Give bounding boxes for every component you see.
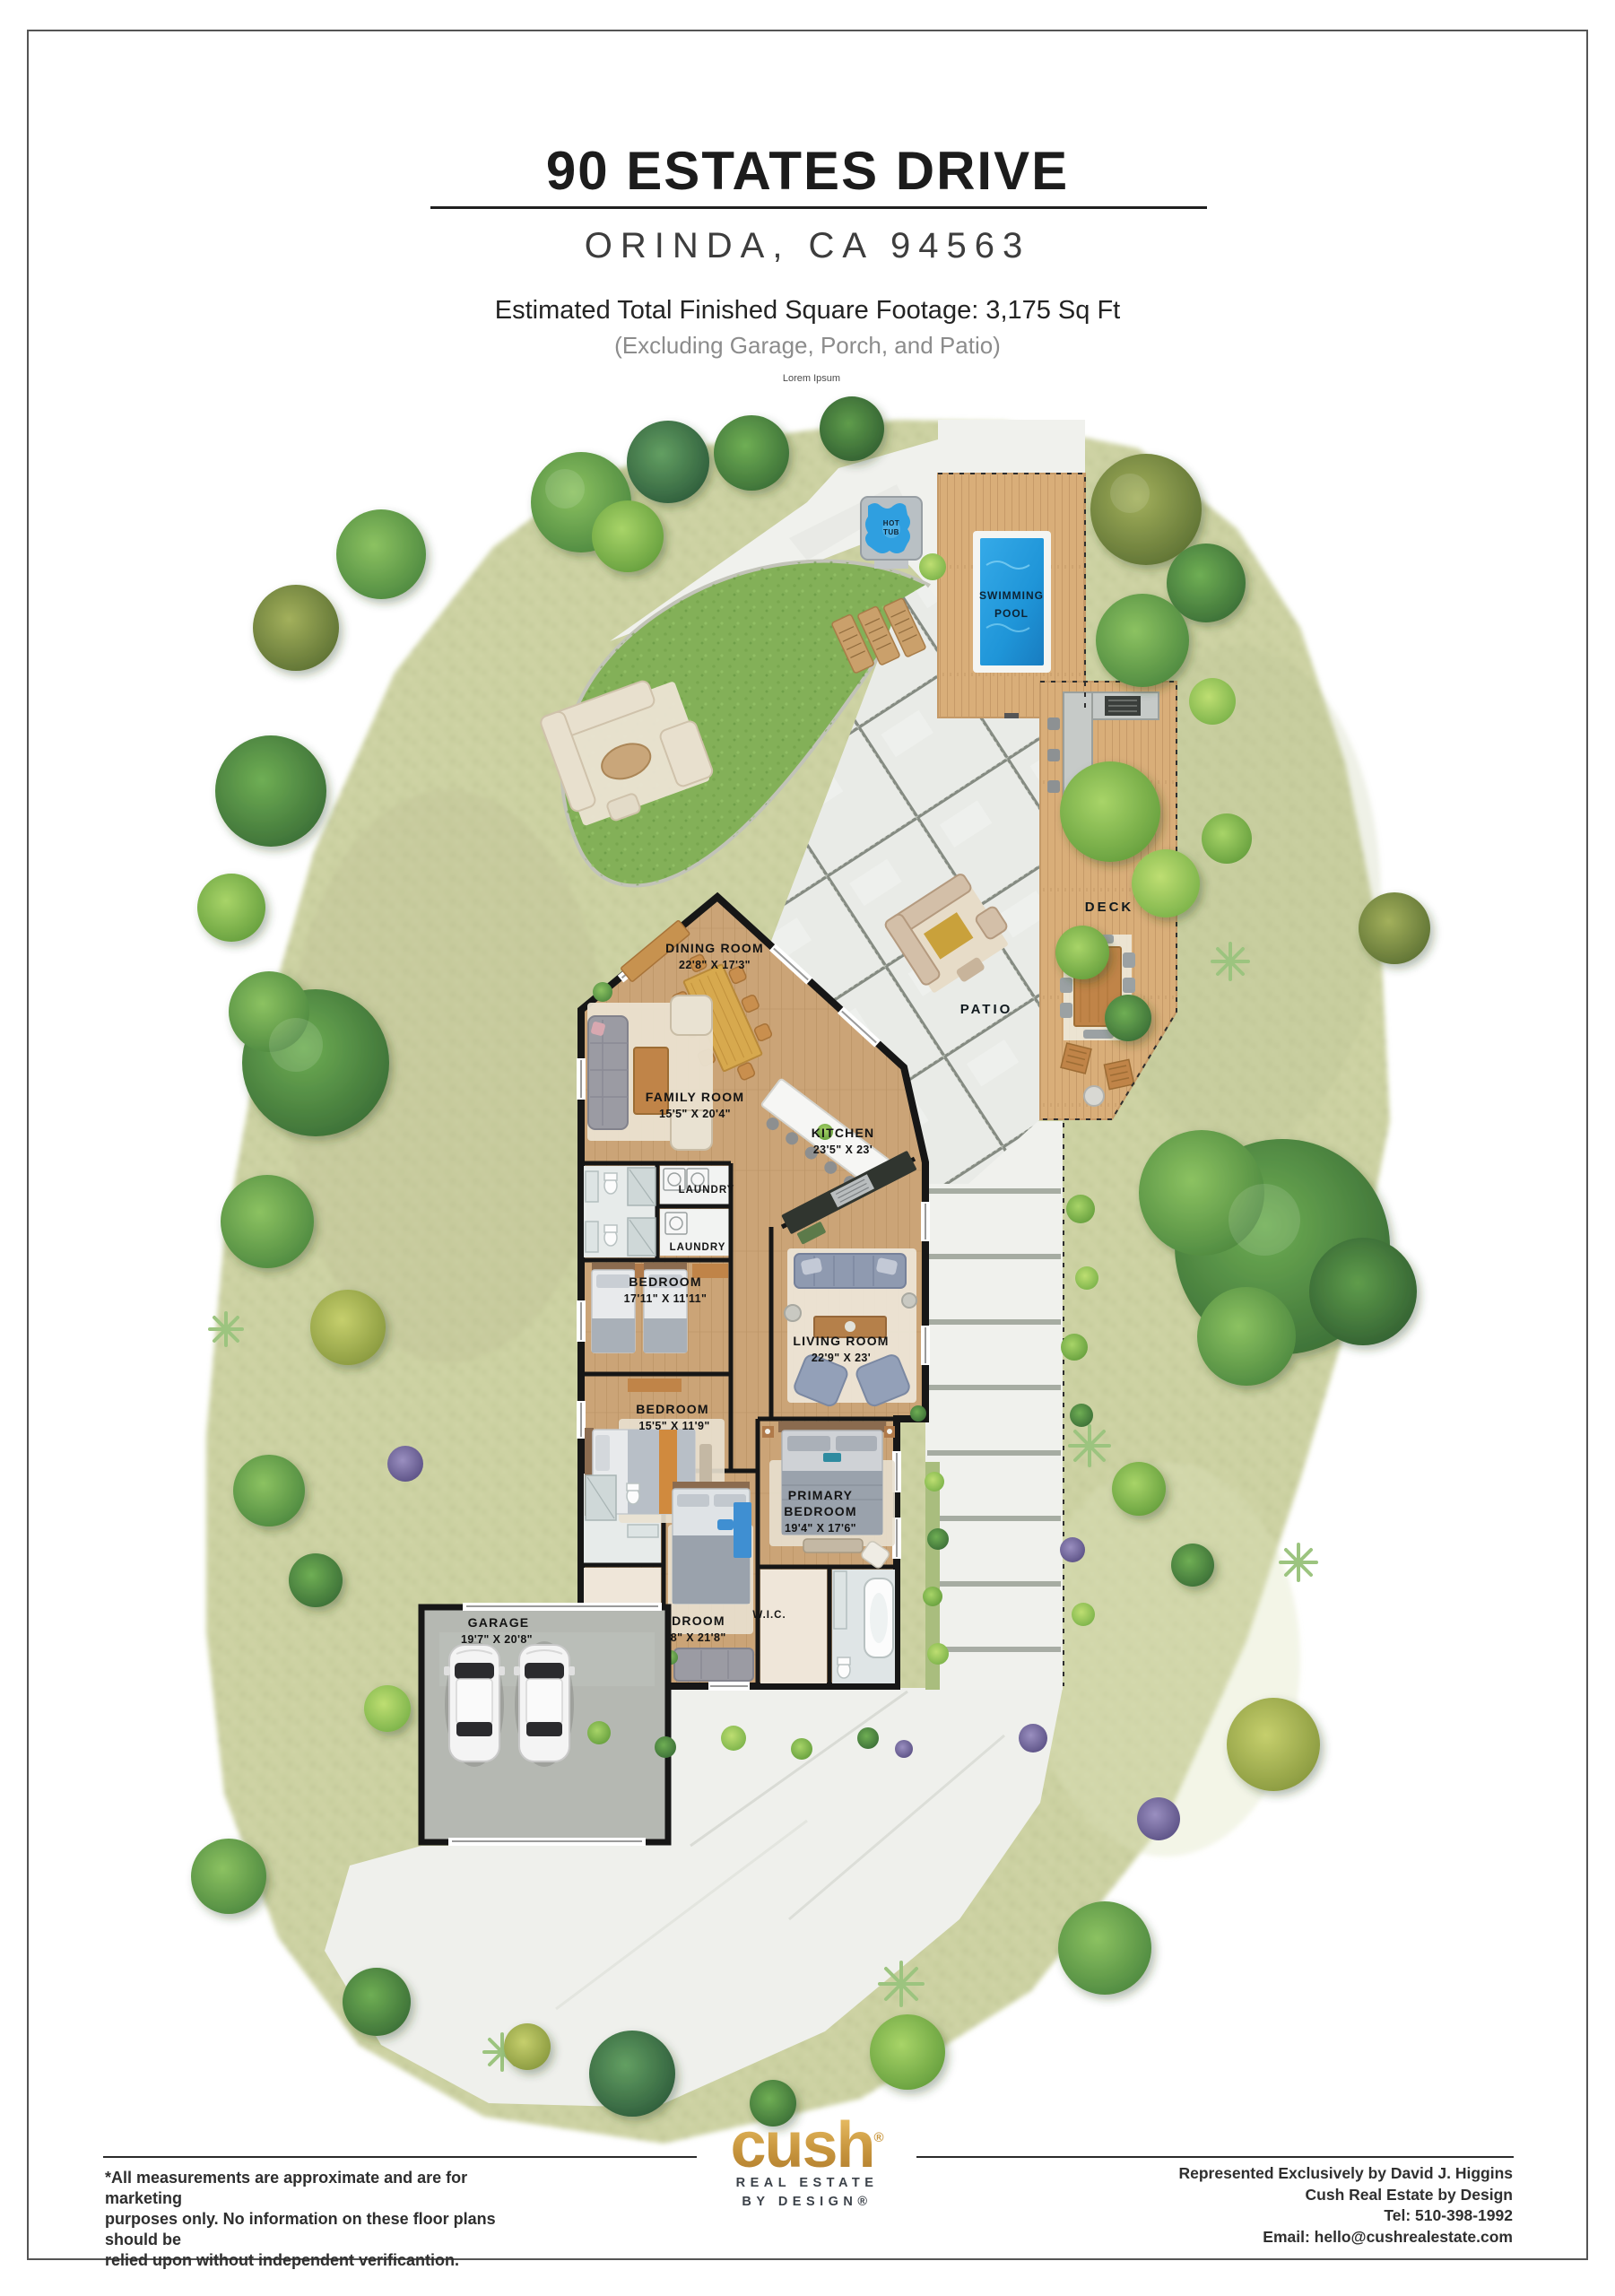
label-dining-room: DINING ROOM — [665, 941, 764, 955]
hall-runner — [734, 1502, 751, 1558]
label-bedroom-1: BEDROOM — [629, 1274, 702, 1289]
label-primary-bedroom-dims: 19'4" X 17'6" — [785, 1522, 856, 1535]
real-estate-flyer: { "colors": { "gold": "#c9973f", "gold_l… — [0, 0, 1615, 2296]
label-kitchen-dims: 23'5" X 23' — [813, 1144, 873, 1156]
label-family-room-dims: 15'5" X 20'4" — [659, 1108, 731, 1120]
footer-rule-right — [916, 2156, 1514, 2158]
footer-rule-left — [103, 2156, 697, 2158]
brand-logo: cush® REAL ESTATE BY DESIGN® — [664, 2117, 951, 2212]
hot-tub-label-line1: HOT — [883, 519, 899, 527]
site-plan: SWIMMING POOL HOT TUB DECK — [0, 0, 1615, 2296]
swimming-pool: SWIMMING POOL — [973, 531, 1051, 673]
contact-line: Email: hello@cushrealestate.com — [975, 2227, 1513, 2248]
car-right — [514, 1641, 575, 1767]
brand-tagline-line2: BY DESIGN® — [664, 2193, 951, 2212]
patio-label: PATIO — [960, 1002, 1013, 1017]
registered-mark: ® — [873, 2130, 883, 2145]
disclaimer: *All measurements are approximate and ar… — [105, 2168, 535, 2271]
label-bedroom-2: BEDROOM — [636, 1402, 709, 1416]
side-walkway — [925, 1121, 1063, 1690]
brand-wordmark: cush — [730, 2117, 873, 2174]
contact-block: Represented Exclusively by David J. Higg… — [975, 2163, 1513, 2248]
car-left — [444, 1641, 505, 1767]
label-laundry-1: LAUNDRY — [679, 1185, 735, 1196]
contact-line: Tel: 510-398-1992 — [975, 2205, 1513, 2227]
hot-tub-label-line2: TUB — [883, 528, 899, 536]
family-room-set — [587, 982, 713, 1150]
contact-line: Represented Exclusively by David J. Higg… — [975, 2163, 1513, 2185]
label-primary-bedroom-line1: PRIMARY — [788, 1488, 853, 1502]
garage: GARAGE 19'7" X 20'8" — [421, 1603, 668, 1846]
label-bedroom-1-dims: 17'11" X 11'11" — [624, 1292, 708, 1305]
hot-tub: HOT TUB — [861, 497, 922, 569]
disclaimer-line: relied upon without independent verifica… — [105, 2250, 535, 2271]
label-bedroom-2-dims: 15'5" X 11'9" — [638, 1420, 709, 1432]
label-kitchen: KITCHEN — [812, 1126, 875, 1140]
label-laundry-2: LAUNDRY — [670, 1242, 726, 1253]
label-family-room: FAMILY ROOM — [646, 1090, 744, 1104]
label-primary-bedroom-line2: BEDROOM — [784, 1504, 857, 1518]
swimming-pool-label-line2: POOL — [994, 607, 1029, 620]
contact-line: Cush Real Estate by Design — [975, 2185, 1513, 2206]
swimming-pool-label-line1: SWIMMING — [979, 589, 1044, 602]
label-living-room-dims: 22'9" X 23' — [812, 1352, 871, 1364]
label-garage: GARAGE — [468, 1615, 530, 1630]
disclaimer-line: purposes only. No information on these f… — [105, 2209, 535, 2250]
label-wic-2: W.I.C. — [752, 1610, 786, 1621]
deck-label: DECK — [1085, 900, 1134, 915]
disclaimer-line: *All measurements are approximate and ar… — [105, 2168, 535, 2209]
label-living-room: LIVING ROOM — [793, 1334, 889, 1348]
label-dining-room-dims: 22'8" X 17'3" — [679, 959, 751, 971]
brand-tagline-line1: REAL ESTATE — [664, 2174, 951, 2193]
